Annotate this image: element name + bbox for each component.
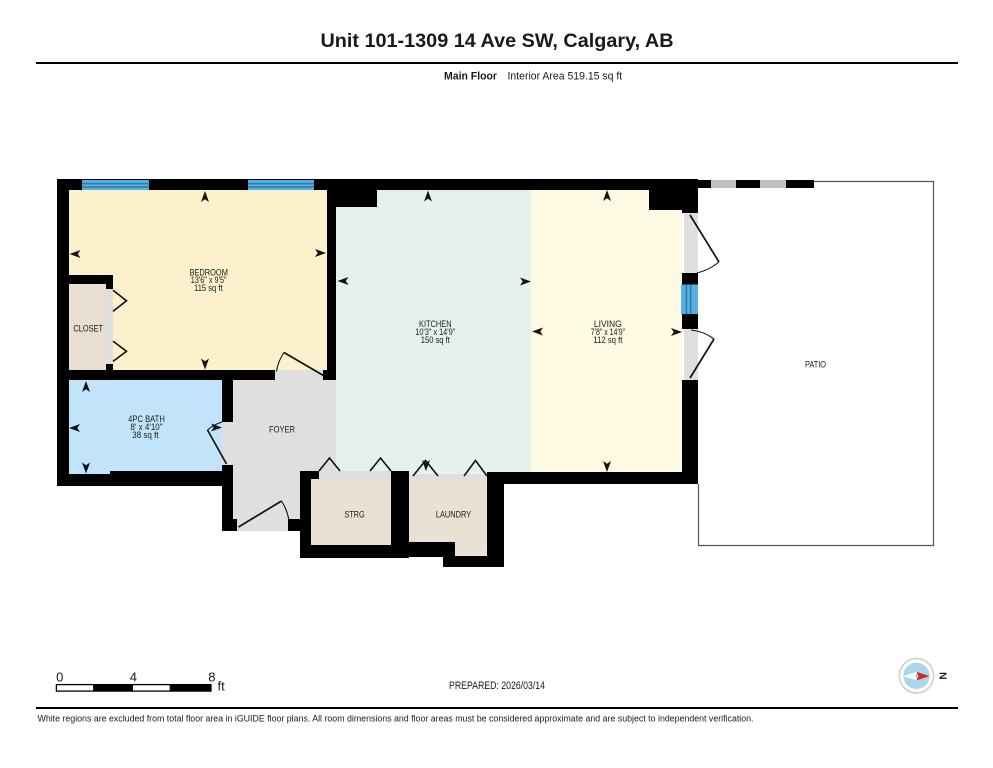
svg-text:CLOSET: CLOSET <box>73 323 103 333</box>
svg-text:Main Floor: Main Floor <box>444 71 497 83</box>
svg-text:4: 4 <box>130 670 137 685</box>
svg-text:ft: ft <box>218 679 226 694</box>
svg-text:PATIO: PATIO <box>805 359 826 369</box>
svg-text:PREPARED: 2026/03/14: PREPARED: 2026/03/14 <box>449 680 545 692</box>
svg-text:0: 0 <box>56 670 63 685</box>
svg-text:115 sq ft: 115 sq ft <box>194 283 223 293</box>
svg-text:LAUNDRY: LAUNDRY <box>436 509 471 519</box>
svg-text:White regions are excluded fro: White regions are excluded from total fl… <box>38 714 754 724</box>
svg-text:Interior Area 519.15 sq ft: Interior Area 519.15 sq ft <box>508 71 623 83</box>
svg-text:112 sq ft: 112 sq ft <box>593 335 622 345</box>
svg-text:FOYER: FOYER <box>269 424 296 434</box>
svg-text:150 sq ft: 150 sq ft <box>421 335 450 345</box>
svg-text:8: 8 <box>208 670 215 685</box>
svg-text:38 sq ft: 38 sq ft <box>132 430 159 440</box>
svg-text:STRG: STRG <box>344 509 364 519</box>
svg-text:Unit 101-1309 14 Ave SW, Calga: Unit 101-1309 14 Ave SW, Calgary, AB <box>321 31 674 52</box>
svg-text:N: N <box>937 672 949 680</box>
